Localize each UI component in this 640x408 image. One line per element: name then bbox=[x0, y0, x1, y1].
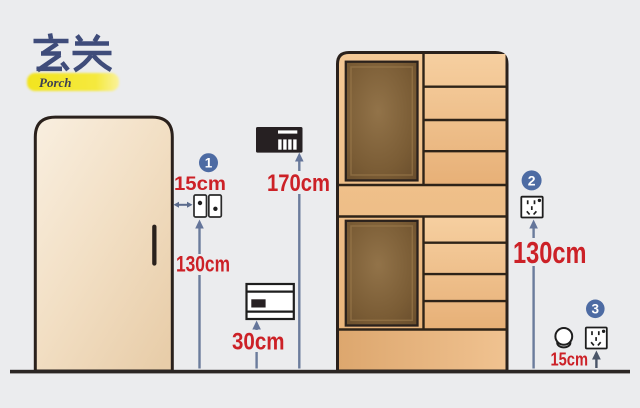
svg-text:2: 2 bbox=[528, 172, 536, 188]
svg-text:15cm: 15cm bbox=[551, 350, 589, 370]
svg-text:130cm: 130cm bbox=[513, 235, 587, 270]
svg-text:1: 1 bbox=[205, 156, 213, 171]
svg-text:130cm: 130cm bbox=[176, 252, 230, 277]
svg-text:Porch: Porch bbox=[39, 75, 72, 90]
svg-text:30cm: 30cm bbox=[232, 329, 285, 356]
svg-text:170cm: 170cm bbox=[267, 170, 330, 197]
svg-text:15cm: 15cm bbox=[174, 173, 226, 195]
svg-text:3: 3 bbox=[592, 302, 600, 317]
